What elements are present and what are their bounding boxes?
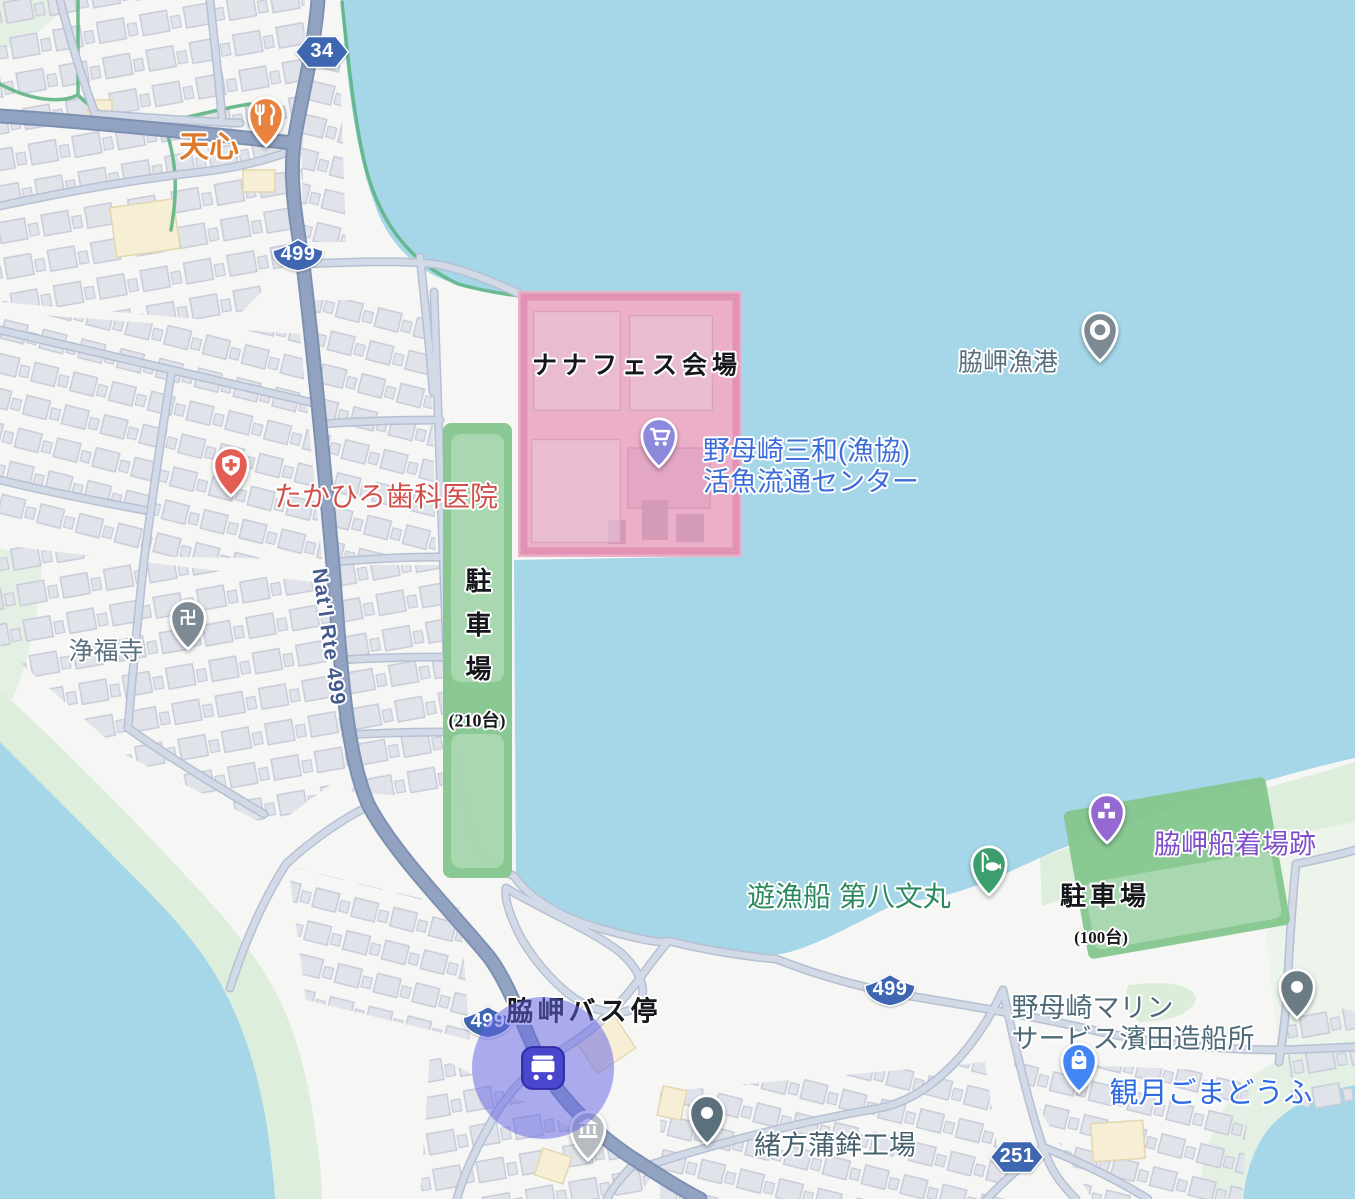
restaurant-icon bbox=[243, 94, 289, 148]
wakimisaki-fishing-port[interactable] bbox=[1077, 309, 1123, 368]
ogata-kamaboko-factory-label[interactable]: 緒方蒲鉾工場 bbox=[754, 1130, 916, 1161]
map-canvas[interactable]: 天心脇岬漁港野母崎三和(漁協)活魚流通センターたかひろ歯科医院卍浄福寺脇岬船着場… bbox=[0, 0, 1355, 1199]
bus-highlight-circle bbox=[472, 997, 614, 1139]
cart-icon bbox=[636, 415, 682, 469]
route-shield-499-top: 499 bbox=[270, 238, 326, 272]
wakimisaki-fishing-port-label[interactable]: 脇岬漁港 bbox=[958, 349, 1058, 378]
dot-icon bbox=[1274, 966, 1320, 1020]
parking-right-label-label: 駐車場 bbox=[1060, 882, 1150, 912]
parking-left-capacity-label: (210台) bbox=[449, 711, 506, 732]
svg-text:卍: 卍 bbox=[179, 609, 197, 629]
fishing-boat-daihachi-fumimaru[interactable] bbox=[966, 843, 1012, 902]
route-shield-499-bay: 499 bbox=[862, 973, 918, 1007]
wakimisaki-boat-landing-ruins[interactable] bbox=[1084, 791, 1130, 850]
bus-icon bbox=[519, 1044, 567, 1092]
festival-venue-label-label: ナナフェス会場 bbox=[532, 353, 742, 382]
temple-icon: 卍 bbox=[165, 597, 211, 651]
restaurant-tenshin[interactable] bbox=[243, 94, 289, 153]
parking-left-label-label: 駐車場 bbox=[461, 567, 491, 699]
dental-icon bbox=[208, 444, 254, 498]
kangetsu-gomadofu-label[interactable]: 観月ごまどうふ bbox=[1109, 1077, 1312, 1110]
jofukuji-temple[interactable]: 卍 bbox=[165, 597, 211, 656]
bag-icon bbox=[1056, 1040, 1102, 1094]
fishing-icon bbox=[966, 843, 1012, 897]
natl-rte-499-road-label: Nat'l Rte 499 bbox=[306, 567, 349, 707]
takahiro-dental-clinic[interactable] bbox=[208, 444, 254, 503]
parking-right-capacity-label: (100台) bbox=[1074, 928, 1128, 948]
map-annotation-layer: 天心脇岬漁港野母崎三和(漁協)活魚流通センターたかひろ歯科医院卍浄福寺脇岬船着場… bbox=[0, 0, 1355, 1199]
route-number: 499 bbox=[270, 238, 326, 272]
kangetsu-gomadofu[interactable] bbox=[1056, 1040, 1102, 1099]
wakimisaki-boat-landing-ruins-label[interactable]: 脇岬船着場跡 bbox=[1154, 829, 1316, 860]
nomozaki-marine-service-shipyard[interactable] bbox=[1274, 966, 1320, 1025]
route-number: 34 bbox=[294, 35, 350, 69]
fish-distribution-center[interactable] bbox=[636, 415, 682, 474]
route-shield-251: 251 bbox=[989, 1140, 1045, 1174]
route-shield-34: 34 bbox=[294, 35, 350, 69]
jofukuji-temple-label[interactable]: 浄福寺 bbox=[68, 638, 143, 667]
ogata-kamaboko-factory[interactable] bbox=[684, 1092, 730, 1151]
route-number: 499 bbox=[862, 973, 918, 1007]
historic-icon bbox=[1084, 791, 1130, 845]
nomozaki-marine-service-shipyard-label[interactable]: 野母崎マリンサービス濱田造船所 bbox=[1012, 993, 1255, 1055]
dot-icon bbox=[684, 1092, 730, 1146]
fish-distribution-center-label[interactable]: 野母崎三和(漁協)活魚流通センター bbox=[703, 436, 919, 498]
route-number: 251 bbox=[989, 1140, 1045, 1174]
harbor-icon bbox=[1077, 309, 1123, 363]
bus-stop[interactable] bbox=[472, 997, 614, 1139]
restaurant-tenshin-label[interactable]: 天心 bbox=[179, 131, 239, 166]
takahiro-dental-clinic-label[interactable]: たかひろ歯科医院 bbox=[274, 481, 498, 513]
fishing-boat-daihachi-fumimaru-label[interactable]: 遊漁船 第八文丸 bbox=[747, 881, 951, 913]
